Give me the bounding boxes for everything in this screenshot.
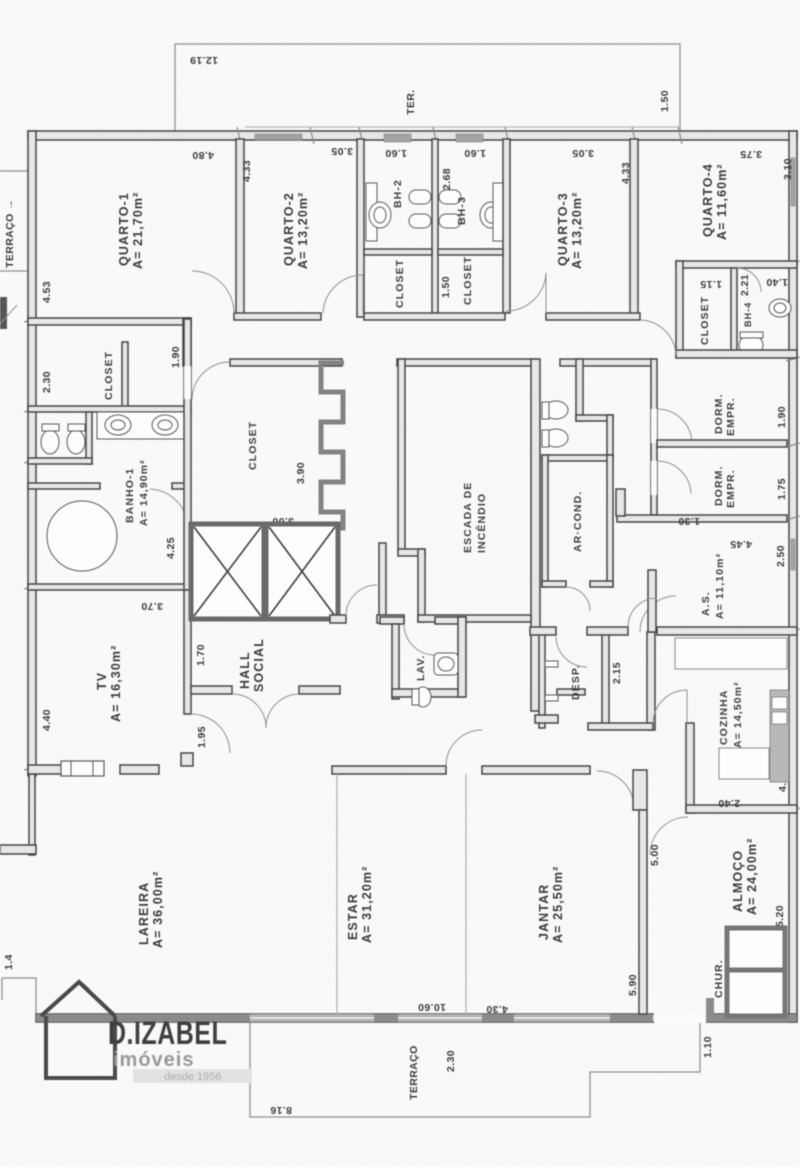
svg-text:CLOSET: CLOSET [699,296,711,345]
svg-text:CLOSET: CLOSET [462,256,474,305]
svg-text:A= 14,90m²: A= 14,90m² [138,459,150,526]
svg-text:2.68: 2.68 [441,168,453,190]
svg-text:2.50: 2.50 [775,545,787,567]
svg-text:1.50: 1.50 [659,90,671,112]
svg-text:5.90: 5.90 [627,974,639,996]
svg-text:3.75: 3.75 [740,148,762,160]
svg-text:A= 24,00m²: A= 24,00m² [745,838,759,915]
svg-text:5.20: 5.20 [774,905,786,927]
svg-text:CLOSET: CLOSET [394,259,406,308]
svg-text:A= 11,10m²: A= 11,10m² [714,553,726,619]
svg-text:TERRAÇO →: TERRAÇO → [4,199,16,268]
svg-text:4.45: 4.45 [730,538,752,550]
svg-text:A.S.: A.S. [700,591,712,616]
svg-text:1.60: 1.60 [464,147,486,159]
svg-text:TERRAÇO: TERRAÇO [408,1045,420,1100]
svg-text:4.40: 4.40 [41,709,53,731]
svg-text:1.10: 1.10 [702,1036,714,1058]
svg-text:JANTAR: JANTAR [537,884,551,940]
svg-text:HALL: HALL [238,651,252,689]
svg-text:LAV.: LAV. [415,654,427,681]
svg-text:A= 13,20m²: A= 13,20m² [570,192,584,269]
svg-text:TER.: TER. [405,89,417,115]
svg-text:2.21: 2.21 [739,274,751,296]
svg-text:INCÊNDIO: INCÊNDIO [475,493,488,553]
svg-text:A= 16,30m²: A= 16,30m² [109,645,123,722]
svg-text:1.4: 1.4 [3,954,15,970]
svg-text:CLOSET: CLOSET [247,421,259,470]
svg-text:5.00: 5.00 [649,844,661,866]
svg-text:DESP.: DESP. [570,664,582,700]
svg-text:10.60: 10.60 [418,1001,446,1013]
svg-text:2.15: 2.15 [611,662,623,684]
svg-text:EMPR.: EMPR. [725,397,737,436]
svg-text:LAREIRA: LAREIRA [137,882,151,945]
svg-text:desde 1956: desde 1956 [164,1071,222,1083]
svg-text:ESCADA DE: ESCADA DE [462,482,474,553]
svg-text:3.10: 3.10 [782,158,794,180]
svg-text:4.33: 4.33 [241,160,253,182]
svg-text:12.19: 12.19 [190,54,218,66]
svg-text:1.60: 1.60 [385,147,407,159]
svg-text:BH-3: BH-3 [456,196,468,225]
svg-text:A= 31,20m²: A= 31,20m² [360,866,374,943]
svg-text:BH-4: BH-4 [743,302,753,327]
svg-text:1.50: 1.50 [440,276,452,298]
svg-text:DORM.: DORM. [713,466,725,507]
svg-text:1.15: 1.15 [700,278,722,290]
svg-text:A= 36,00m²: A= 36,00m² [151,871,165,948]
svg-text:A= 13,20m²: A= 13,20m² [296,192,310,269]
svg-text:ESTAR: ESTAR [346,893,360,940]
svg-text:1.95: 1.95 [196,726,208,748]
svg-text:AR·COND.: AR·COND. [572,491,584,552]
svg-text:4.80: 4.80 [192,149,214,161]
svg-text:BANHO-1: BANHO-1 [124,467,136,523]
svg-text:A= 11,60m²: A= 11,60m² [715,163,729,240]
svg-text:1.30: 1.30 [678,515,700,527]
svg-text:CLOSET: CLOSET [103,351,115,400]
svg-text:2.30: 2.30 [41,371,53,393]
svg-text:CHUR.: CHUR. [713,959,725,998]
svg-text:BH-2: BH-2 [392,179,404,208]
svg-text:EMPR.: EMPR. [725,469,737,508]
svg-text:1.70: 1.70 [195,644,207,666]
svg-text:4.53: 4.53 [41,281,53,303]
svg-text:QUARTO-1: QUARTO-1 [117,192,131,266]
svg-text:1.90: 1.90 [170,346,182,368]
svg-text:A= 21,70m²: A= 21,70m² [131,192,145,269]
svg-text:ALMOÇO: ALMOÇO [731,850,745,912]
svg-text:3.90: 3.90 [295,462,307,484]
svg-text:QUARTO-2: QUARTO-2 [282,192,296,266]
svg-text:TV: TV [95,672,109,690]
svg-text:1.90: 1.90 [776,406,788,428]
svg-text:SOCIAL: SOCIAL [252,638,266,692]
svg-text:8.16: 8.16 [270,1104,292,1116]
svg-text:A= 14,50m²: A= 14,50m² [732,681,744,748]
svg-text:DORM.: DORM. [713,394,725,435]
svg-text:COZINHA: COZINHA [718,689,730,745]
svg-text:QUARTO-3: QUARTO-3 [556,192,570,266]
svg-text:3.05: 3.05 [331,145,353,157]
svg-text:A= 25,50m²: A= 25,50m² [551,866,565,943]
svg-text:QUARTO-4: QUARTO-4 [701,163,715,237]
svg-text:1.75: 1.75 [776,478,788,500]
svg-text:D.IZABEL: D.IZABEL [108,1016,227,1052]
svg-text:3.70: 3.70 [141,600,163,612]
svg-text:imóveis: imóveis [113,1049,194,1071]
svg-text:3.05: 3.05 [572,147,594,159]
svg-text:2.40: 2.40 [718,797,740,809]
svg-text:4.25: 4.25 [165,537,177,559]
svg-text:1.40: 1.40 [766,276,788,288]
svg-text:4.30: 4.30 [486,1003,508,1015]
svg-text:2.30: 2.30 [445,1050,457,1072]
